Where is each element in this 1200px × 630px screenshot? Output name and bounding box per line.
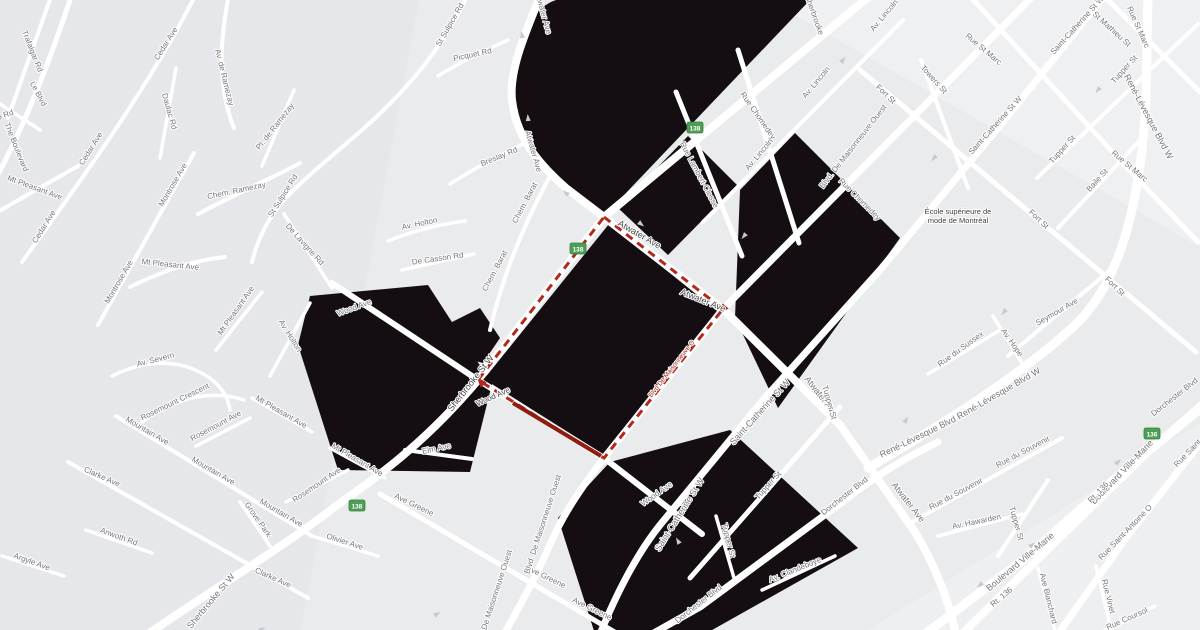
route-shield-label: 138 xyxy=(352,504,363,511)
route-shield-label: 138 xyxy=(690,126,701,133)
poi-label[interactable]: École supérieure de xyxy=(925,207,992,216)
route-shield-label: 138 xyxy=(573,247,584,254)
poi-label[interactable]: mode de Montréal xyxy=(928,216,989,225)
map-svg[interactable]: Trafalgar RdLe BlvdThe Boulevardeo RdCed… xyxy=(0,0,1200,630)
route-shield-label: 136 xyxy=(1147,432,1158,439)
map-canvas[interactable]: Trafalgar RdLe BlvdThe Boulevardeo RdCed… xyxy=(0,0,1200,630)
